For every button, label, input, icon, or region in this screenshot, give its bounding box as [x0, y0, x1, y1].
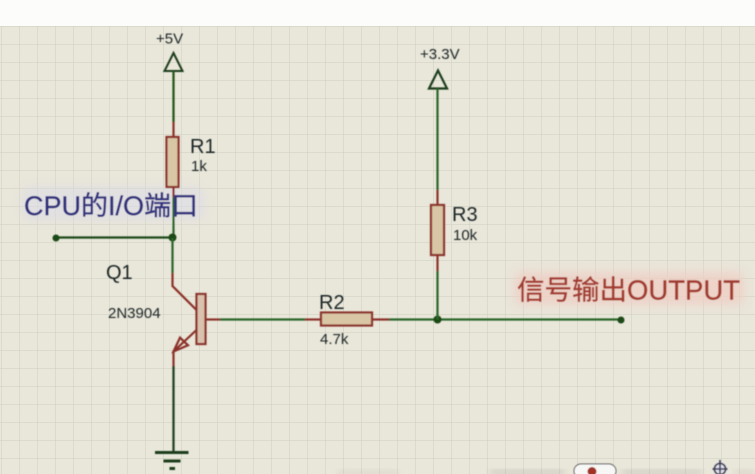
svg-text:4.7k: 4.7k [320, 331, 349, 348]
svg-text:OUTPUT: OUTPUT [627, 275, 740, 306]
svg-text:+5V: +5V [156, 31, 183, 48]
svg-text:Q1: Q1 [106, 262, 133, 284]
svg-text:1k: 1k [191, 158, 207, 175]
svg-text:R2: R2 [319, 292, 345, 314]
svg-text:10k: 10k [453, 227, 478, 244]
svg-text:R1: R1 [190, 136, 216, 158]
svg-text:+3.3V: +3.3V [420, 46, 460, 63]
svg-text:CPU: CPU [24, 191, 81, 221]
svg-text:R3: R3 [452, 204, 478, 226]
svg-text:I/O: I/O [108, 191, 144, 221]
svg-text:2N3904: 2N3904 [108, 305, 161, 322]
